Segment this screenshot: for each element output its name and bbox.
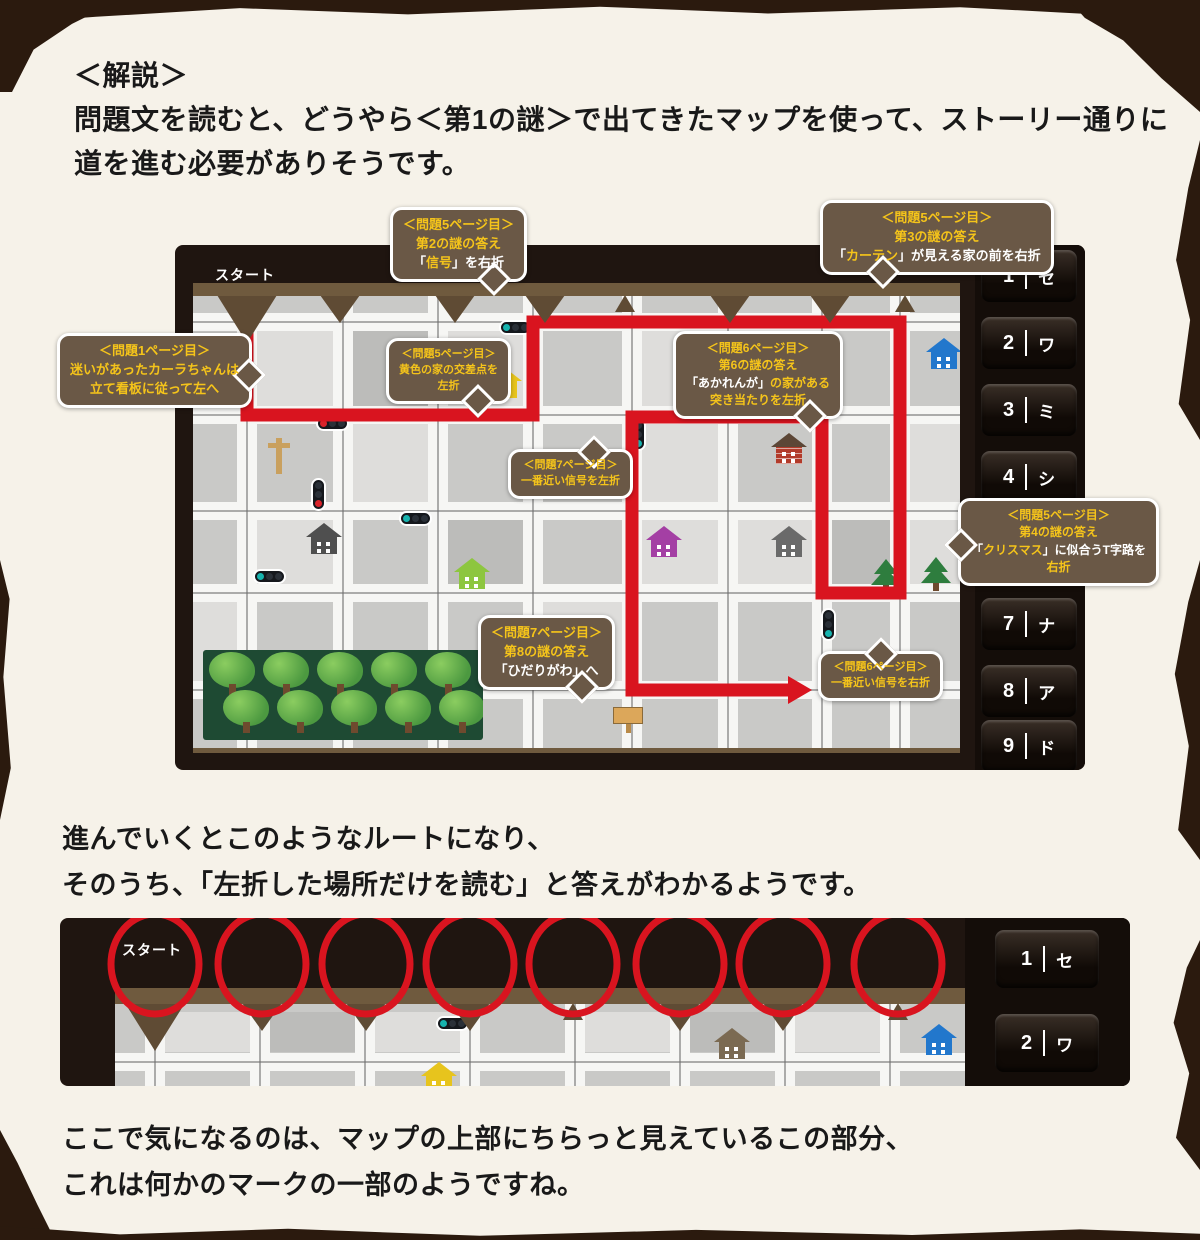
bubble-text-line: 第6の謎の答え [686,357,830,374]
bubble-text-line: ＜問題6ページ目＞ [686,340,830,357]
keypad-key-2[interactable]: 2ワ [981,317,1077,369]
key-kana: ワ [1038,331,1055,356]
keypad-key-9[interactable]: 9ド [981,720,1077,770]
mark-tip-down-icon [435,296,475,323]
bubble-text-line: ＜問題6ページ目＞ [831,660,930,676]
map-top-closeup: スタート1セ2ワ [60,918,1130,1086]
bubble-text-line: 迷いがあったカーラちゃんは [70,361,239,380]
torn-edge-right-1 [1174,140,1200,440]
bubble-text-line: ＜問題5ページ目＞ [971,507,1146,524]
key-number: 9 [1003,735,1014,758]
key-divider [1025,678,1027,704]
mark-tip-up-icon [615,296,635,312]
key-number: 8 [1003,680,1014,703]
bubble-text-line: 黄色の家の交差点を [399,363,498,379]
key-number: 7 [1003,613,1014,636]
bubble-text-line: 立て看板に従って左へ [70,380,239,399]
mark-tip-down-icon [320,296,360,323]
torn-edge-right-2 [1172,560,1200,860]
key-kana: ミ [1038,398,1055,423]
bubble-text-line: 一番近い信号を左折 [521,474,620,490]
speech-bubble: ＜問題7ページ目＞一番近い信号を左折 [508,449,633,499]
bubble-text-line: 左折 [399,379,498,395]
bubble-text-line: 「カーテン」が見える家の前を右折 [833,247,1041,266]
bubble-text-line: 突き当たりを左折 [686,392,830,409]
bubble-text-line: 第3の謎の答え [833,228,1041,247]
mark-tip-down-icon [525,296,565,323]
mark-tip-up-icon [895,296,915,312]
mark-note-line-1: ここで気になるのは、マップの上部にちらっと見えているこの部分、 [62,1116,913,1162]
bubble-text-line: 「ひだりがわ」へ [491,662,602,681]
bubble-text-line: ＜問題5ページ目＞ [399,347,498,363]
bubble-text-line: ＜問題7ページ目＞ [491,624,602,643]
mark-tip-down-icon [710,296,750,323]
torn-edge-right-3 [1170,940,1200,1170]
key-number: 4 [1003,466,1014,489]
bubble-text-line: 「クリスマス」に似合うT字路を [971,542,1146,559]
key-divider [1025,464,1027,490]
route-map: スタート1セ2ワ3ミ4シ7ナ8ア9ド [175,245,1085,770]
bubble-text-line: 第4の謎の答え [971,524,1146,541]
key-kana: ア [1038,679,1055,704]
speech-bubble: ＜問題1ページ目＞迷いがあったカーラちゃんは立て看板に従って左へ [57,333,252,408]
bubble-text-line: ＜問題5ページ目＞ [403,216,514,235]
route-note-line-1: 進んでいくとこのようなルートになり、 [62,816,871,862]
key-number: 3 [1003,399,1014,422]
bubble-text-line: 「信号」を右折 [403,254,514,273]
speech-bubble: ＜問題5ページ目＞第3の謎の答え「カーテン」が見える家の前を右折 [820,200,1054,275]
mark-tip-down-icon [810,296,850,323]
explanation-line-1: 問題文を読むと、どうやら＜第1の謎＞で出てきたマップを使って、ストーリー通りに [74,98,1168,142]
torn-edge-left [0,560,12,820]
torn-edge-top [0,0,1200,24]
key-kana: ナ [1038,612,1055,637]
speech-bubble: ＜問題7ページ目＞第8の謎の答え「ひだりがわ」へ [478,615,615,690]
bubble-text-line: 一番近い信号を右折 [831,676,930,692]
speech-bubble: ＜問題5ページ目＞第2の謎の答え「信号」を右折 [390,207,527,282]
route-note-line-2: そのうち、「左折した場所だけを読む」と答えがわかるようです。 [62,862,871,908]
keypad-key-3[interactable]: 3ミ [981,384,1077,436]
bubble-text-line: ＜問題1ページ目＞ [70,342,239,361]
key-kana: シ [1038,465,1055,490]
key-divider [1025,397,1027,423]
explanation-heading-block: ＜解説＞ 問題文を読むと、どうやら＜第1の謎＞で出てきたマップを使って、ストーリ… [74,54,1168,186]
speech-bubble: ＜問題5ページ目＞第4の謎の答え「クリスマス」に似合うT字路を右折 [958,498,1159,586]
explanation-heading: ＜解説＞ [74,54,1168,98]
key-number: 2 [1003,332,1014,355]
bubble-text-line: 右折 [971,559,1146,576]
bubble-text-line: 「あかれんが」の家がある [686,375,830,392]
key-divider [1025,330,1027,356]
keypad-key-7[interactable]: 7ナ [981,598,1077,650]
map-top-strip [193,283,960,296]
torn-edge-bottom [0,1226,1200,1240]
speech-bubble: ＜問題6ページ目＞一番近い信号を右折 [818,651,943,701]
mark-note-block: ここで気になるのは、マップの上部にちらっと見えているこの部分、 これは何かのマー… [62,1116,913,1208]
torn-edge-bottom-left [0,1130,55,1240]
bubble-text-line: 第2の謎の答え [403,235,514,254]
red-circles-overlay [60,918,1130,1086]
explanation-line-2: 道を進む必要がありそうです。 [74,142,1168,186]
bubble-text-line: 第8の謎の答え [491,643,602,662]
start-label: スタート [215,265,275,285]
key-divider [1025,733,1027,759]
bubble-text-line: ＜問題5ページ目＞ [833,209,1041,228]
bubble-text-line: ＜問題7ページ目＞ [521,458,620,474]
speech-bubble: ＜問題6ページ目＞第6の謎の答え「あかれんが」の家がある突き当たりを左折 [673,331,843,419]
mark-note-line-2: これは何かのマークの一部のようですね。 [62,1162,913,1208]
keypad-key-8[interactable]: 8ア [981,665,1077,717]
key-divider [1025,611,1027,637]
key-kana: ド [1038,734,1055,759]
route-note-block: 進んでいくとこのようなルートになり、 そのうち、「左折した場所だけを読む」と答え… [62,816,871,908]
keypad-key-4[interactable]: 4シ [981,451,1077,503]
speech-bubble: ＜問題5ページ目＞黄色の家の交差点を左折 [386,338,511,404]
